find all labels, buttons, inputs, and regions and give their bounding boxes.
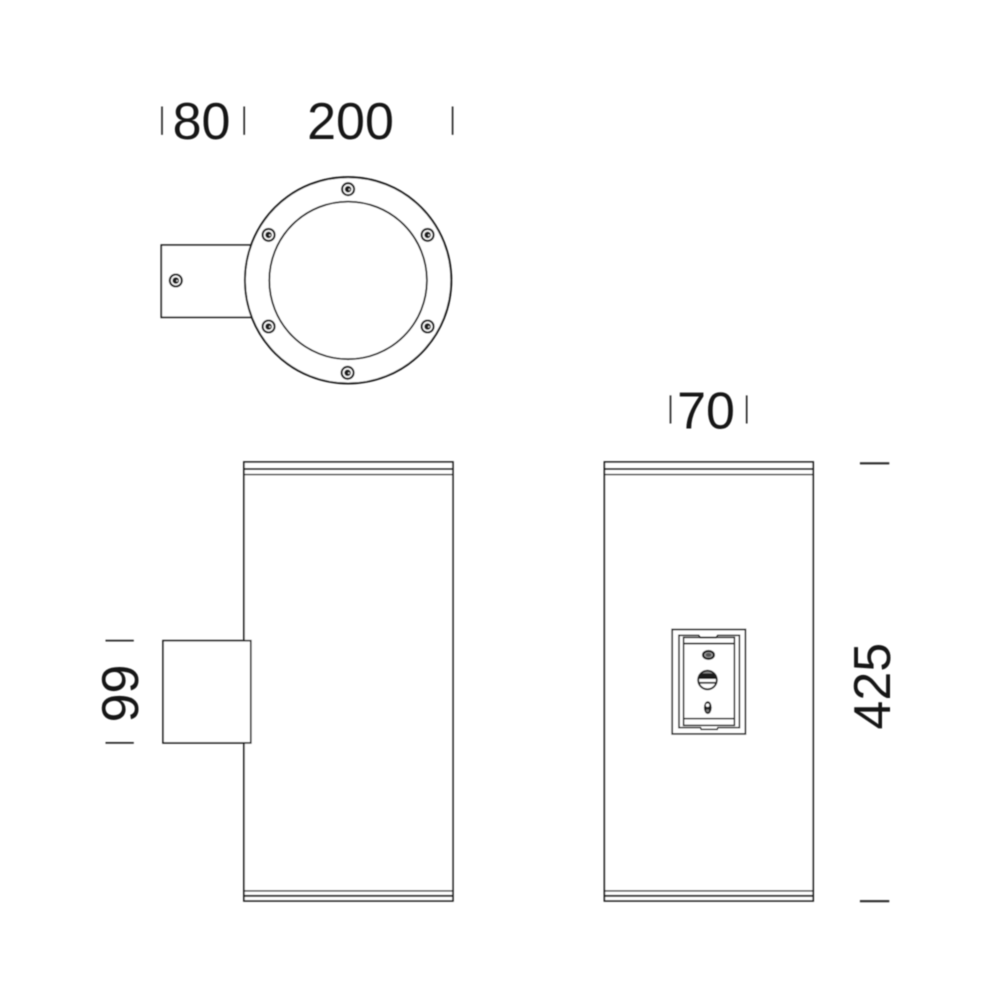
svg-text:200: 200 — [307, 93, 394, 151]
svg-text:425: 425 — [844, 643, 902, 730]
svg-text:70: 70 — [677, 382, 735, 440]
svg-text:80: 80 — [173, 93, 231, 151]
svg-text:99: 99 — [92, 665, 150, 723]
